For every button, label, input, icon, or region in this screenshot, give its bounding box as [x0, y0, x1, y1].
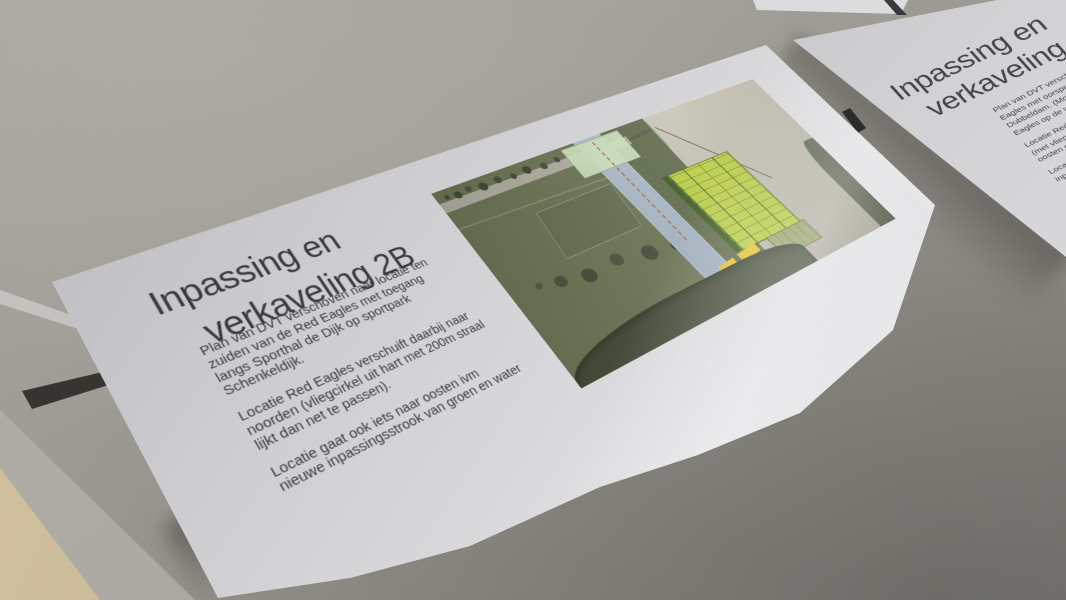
- map-sports-field: [536, 183, 643, 259]
- map-yellow-road-marks: [718, 243, 761, 275]
- map-radius-label: Straal 200 m: [629, 127, 654, 142]
- map-tree-clusters: [534, 282, 544, 290]
- map-radius-line: [592, 142, 687, 240]
- map-road-overlay: [570, 131, 761, 310]
- map-site-overlay-rect: [560, 130, 641, 179]
- map-green-strip: [592, 119, 789, 303]
- map-diagonal-treeline: [654, 127, 772, 178]
- main-document-body: Plan van DVT verschoven naar locatie ten…: [198, 251, 536, 509]
- main-document-paragraph: Locatie gaat ook iets naar oosten ivm ni…: [268, 349, 528, 497]
- map-dimension-outline: [579, 122, 669, 173]
- map-field-boundary: [458, 174, 617, 230]
- map-bottom-trees: [555, 234, 822, 388]
- map-hedge-strip: [661, 176, 742, 253]
- main-document-paragraph: Plan van DVT verschoven naar locatie ten…: [198, 251, 470, 400]
- main-document-title-line2: verkaveling 2B: [195, 237, 424, 354]
- map-tree-row: [443, 194, 451, 200]
- map-top-road: [439, 136, 632, 213]
- map-parcel-grid: [667, 151, 802, 251]
- scene-photo: Inpassing en verkaveling Plan van DVT ve…: [0, 0, 1066, 600]
- map-parcel-block-small: [766, 219, 823, 257]
- main-document-paragraph: Locatie Red Eagles verschuift daarbij na…: [236, 304, 503, 454]
